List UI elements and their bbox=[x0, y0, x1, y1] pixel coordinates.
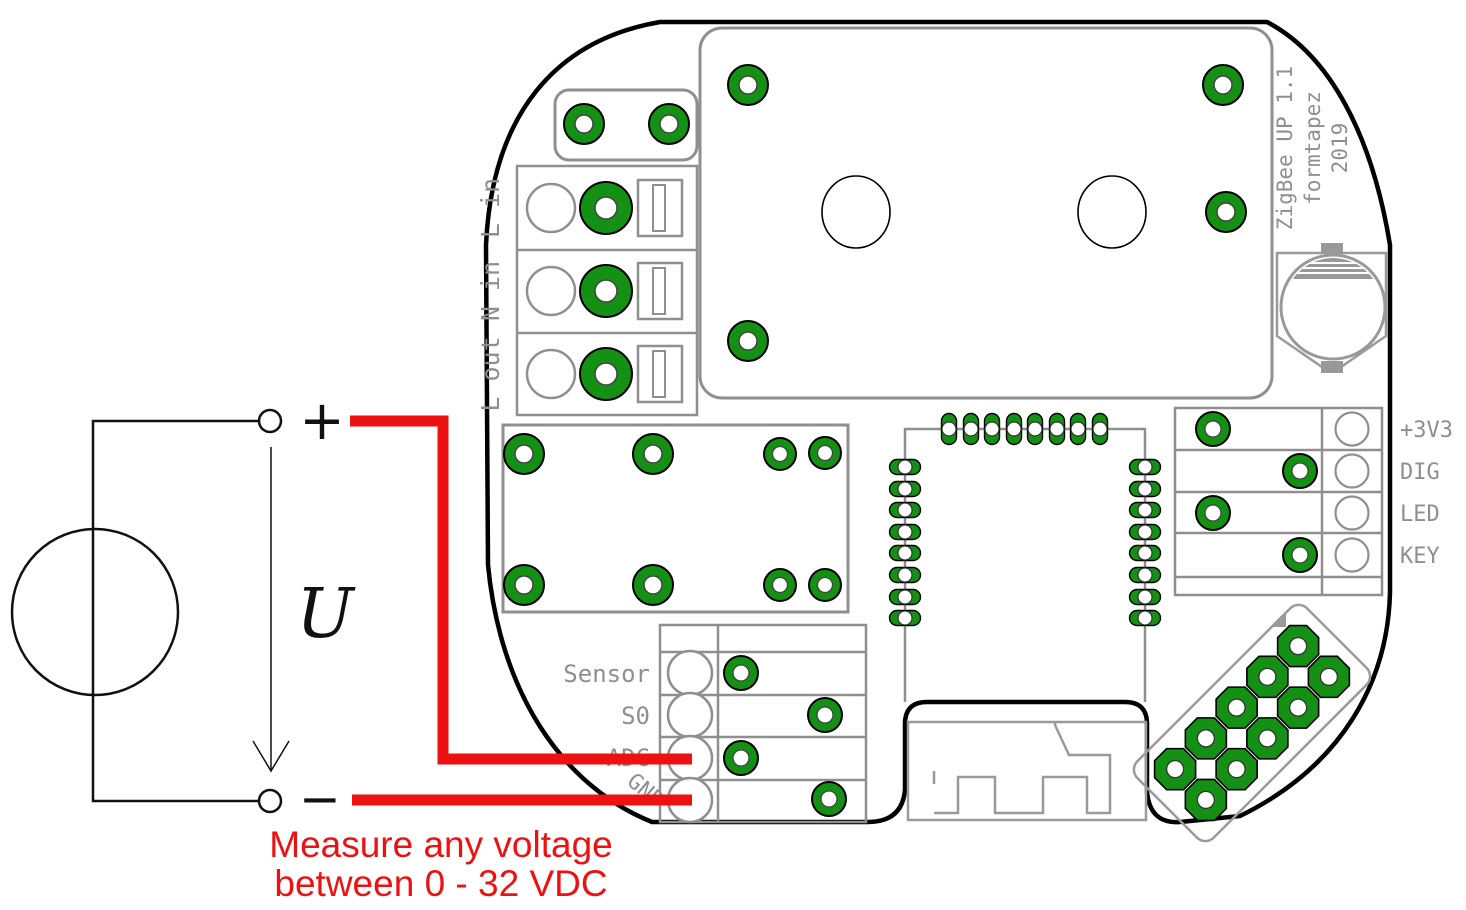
pad-n-in bbox=[580, 265, 632, 317]
pcb-wiring-diagram: L in N in L out bbox=[0, 0, 1466, 910]
board-title-line2: formtapez bbox=[1301, 91, 1325, 205]
hole-led bbox=[1336, 497, 1369, 530]
pad bbox=[728, 321, 768, 361]
label-3v3: +3V3 bbox=[1400, 418, 1453, 443]
pad bbox=[764, 569, 796, 601]
pad bbox=[809, 569, 841, 601]
pad bbox=[649, 104, 689, 144]
plus-sign: + bbox=[299, 389, 344, 452]
hole bbox=[527, 267, 575, 315]
pad bbox=[633, 434, 673, 474]
label-led: LED bbox=[1400, 502, 1440, 527]
board-title-line3: 2019 bbox=[1328, 123, 1352, 174]
pad-led bbox=[1196, 496, 1230, 530]
pad bbox=[1203, 65, 1243, 105]
hole bbox=[527, 184, 575, 232]
hole-key bbox=[1336, 539, 1369, 572]
pad bbox=[764, 438, 796, 470]
label-dig: DIG bbox=[1400, 460, 1440, 485]
minus-sign: − bbox=[299, 770, 341, 828]
pad-key bbox=[1283, 538, 1317, 572]
terminal-label-l-out: L out bbox=[476, 336, 505, 411]
pad-gnd bbox=[812, 782, 846, 816]
hole bbox=[527, 350, 575, 398]
label-sensor: Sensor bbox=[563, 660, 650, 688]
pad-s0 bbox=[808, 698, 842, 732]
label-s0: S0 bbox=[621, 702, 650, 730]
pad bbox=[1206, 192, 1246, 232]
diagram-canvas: L in N in L out bbox=[0, 0, 1466, 910]
hole-sensor bbox=[668, 651, 712, 695]
label-key: KEY bbox=[1400, 544, 1440, 569]
pad-3v3 bbox=[1196, 412, 1230, 446]
terminal-negative bbox=[259, 790, 281, 812]
pad-sensor bbox=[724, 656, 758, 690]
annotation-line1: Measure any voltage bbox=[269, 824, 612, 865]
pad-l-in bbox=[580, 182, 632, 234]
annotation-line2: between 0 - 32 VDC bbox=[274, 863, 607, 904]
pad-dig bbox=[1283, 454, 1317, 488]
pad bbox=[564, 104, 604, 144]
hole-dig bbox=[1336, 455, 1369, 488]
pad bbox=[633, 565, 673, 605]
hole-3v3 bbox=[1336, 413, 1369, 446]
pad-l-out bbox=[580, 348, 632, 400]
voltage-source-symbol bbox=[12, 529, 178, 695]
terminal-label-l-in: L in bbox=[476, 178, 505, 238]
pad bbox=[504, 565, 544, 605]
terminal-label-n-in: N in bbox=[476, 261, 505, 321]
hole-s0 bbox=[668, 693, 712, 737]
pad-adc bbox=[724, 741, 758, 775]
pad bbox=[728, 65, 768, 105]
voltage-label: U bbox=[296, 575, 356, 654]
pad bbox=[504, 434, 544, 474]
usb-connector bbox=[908, 722, 1146, 820]
terminal-positive bbox=[259, 410, 281, 432]
circuit-wires bbox=[93, 421, 259, 801]
pad bbox=[809, 437, 841, 469]
voltage-source-circuit: + − U bbox=[12, 389, 356, 828]
board-title-line1: ZigBee UP 1.1 bbox=[1273, 66, 1297, 230]
